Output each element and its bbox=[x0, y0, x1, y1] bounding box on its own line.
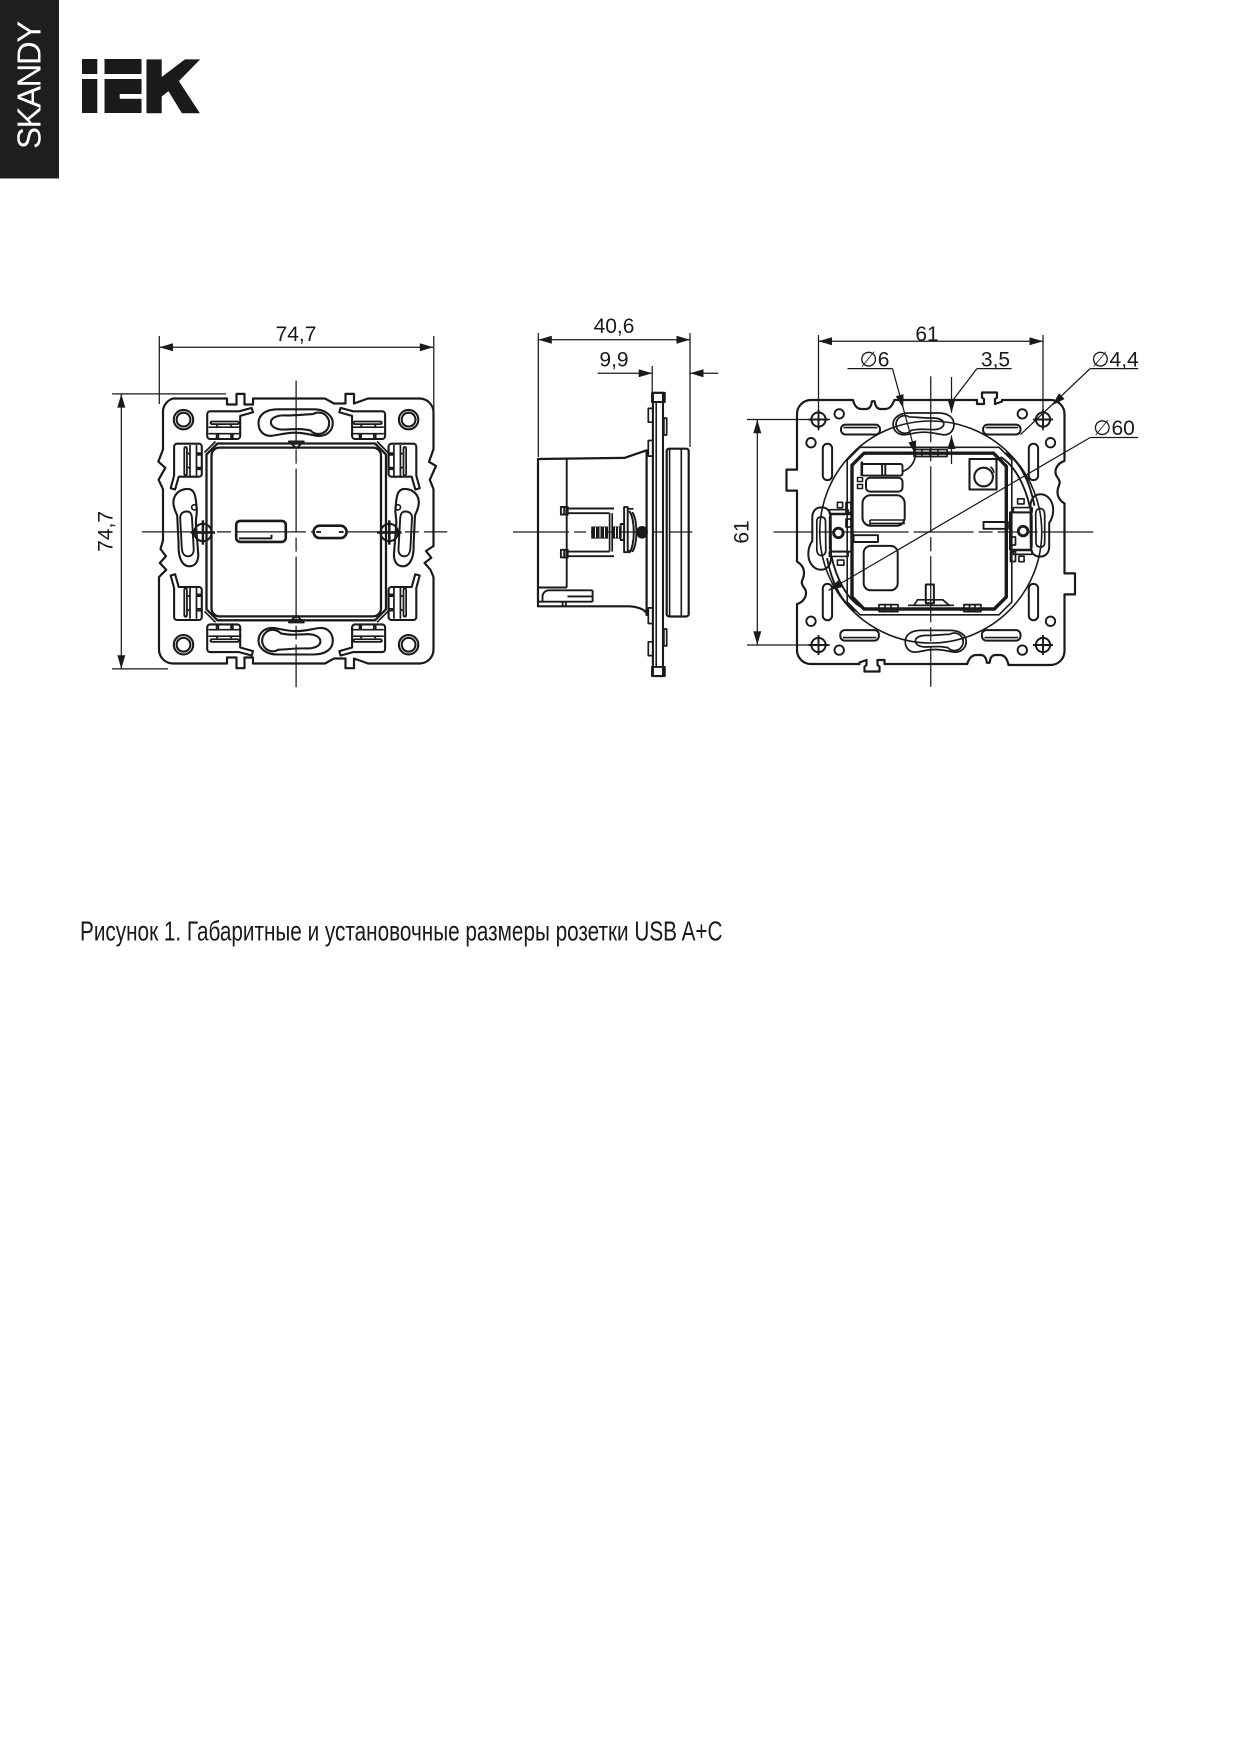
svg-text:9,9: 9,9 bbox=[599, 349, 628, 372]
svg-text:40,6: 40,6 bbox=[594, 315, 635, 338]
svg-text:61: 61 bbox=[915, 323, 938, 346]
svg-text:Рисунок 1. Габаритные и устано: Рисунок 1. Габаритные и установочные раз… bbox=[80, 917, 722, 948]
svg-text:∅60: ∅60 bbox=[1093, 417, 1135, 440]
svg-text:SKANDY: SKANDY bbox=[11, 21, 48, 149]
svg-text:74,7: 74,7 bbox=[276, 323, 317, 346]
svg-text:61: 61 bbox=[731, 520, 754, 543]
svg-text:74,7: 74,7 bbox=[95, 511, 118, 552]
